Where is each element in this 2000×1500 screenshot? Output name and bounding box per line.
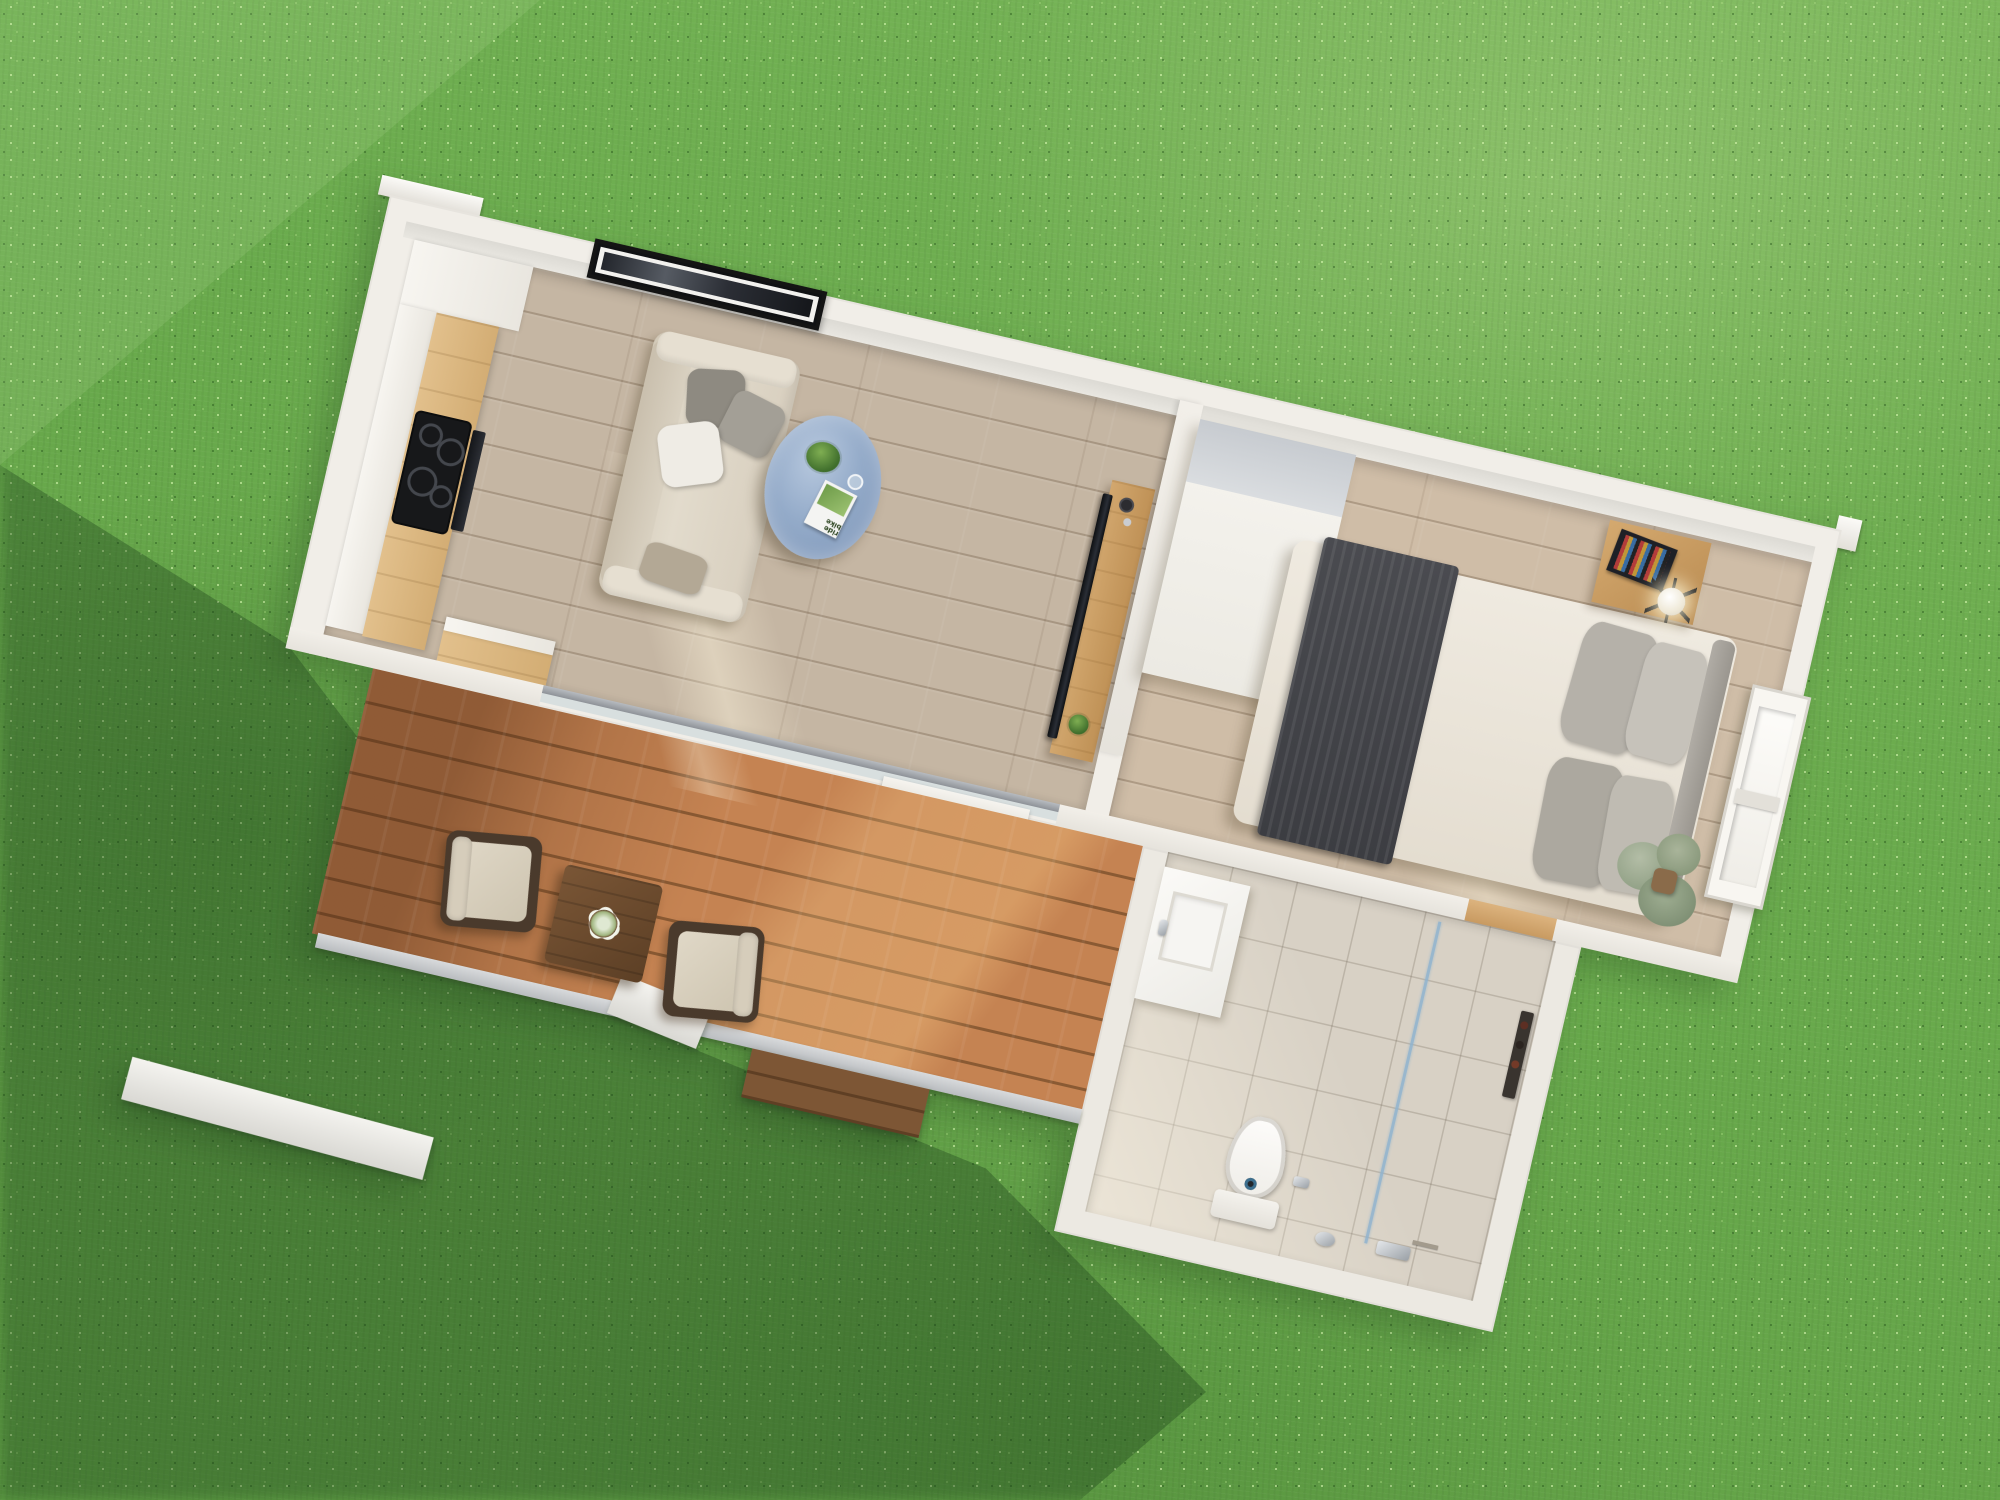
table-plant bbox=[803, 439, 843, 476]
console-decor bbox=[1122, 517, 1132, 527]
toiletry-bottle bbox=[1510, 1060, 1520, 1070]
drinking-glass bbox=[846, 472, 865, 491]
toiletry-bottle bbox=[1519, 1021, 1529, 1031]
deck-armchair bbox=[662, 920, 766, 1024]
toiletry-bottle bbox=[1515, 1040, 1525, 1050]
console-cup bbox=[1120, 499, 1133, 512]
vanity-basin bbox=[1158, 891, 1229, 972]
console-plant bbox=[1067, 712, 1091, 736]
pillow-white bbox=[656, 420, 725, 489]
deck-armchair bbox=[439, 829, 543, 933]
aerial-scene: ride bike bbox=[0, 0, 2000, 1500]
bed-throw-blanket bbox=[1256, 536, 1459, 865]
flower-centerpiece bbox=[587, 907, 621, 941]
toilet-flush-button bbox=[1243, 1177, 1257, 1191]
magazine-cover-photo bbox=[817, 484, 854, 517]
